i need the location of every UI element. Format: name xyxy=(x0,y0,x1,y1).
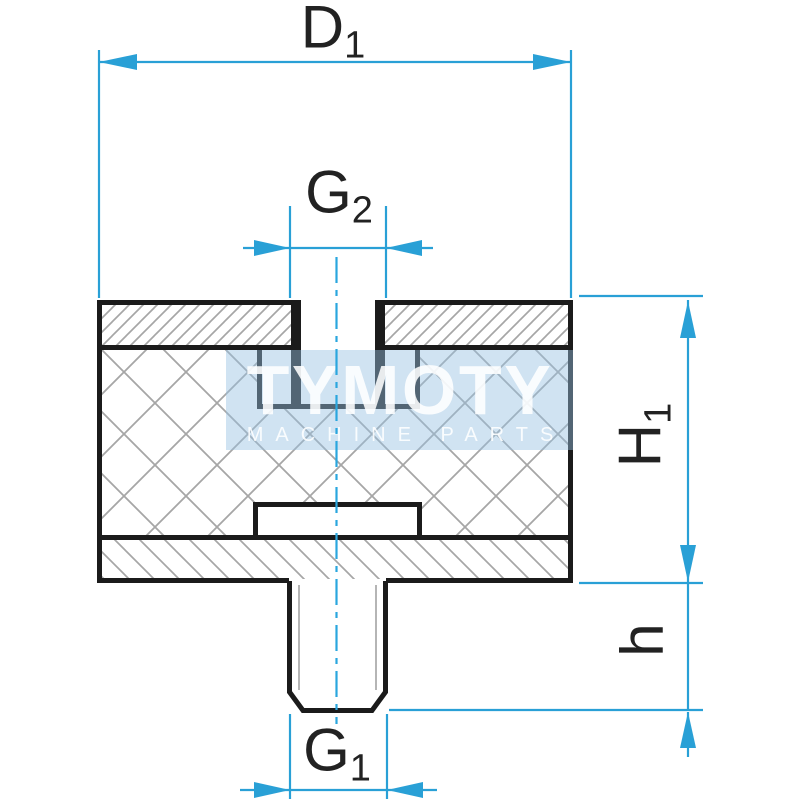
label-h1-sub: 1 xyxy=(638,403,680,424)
label-h1: H1 xyxy=(611,403,678,467)
d1-arrow-left-icon xyxy=(99,54,137,70)
label-h: h xyxy=(613,623,680,656)
watermark-title: TYMOTY xyxy=(247,351,554,429)
label-d1: D1 xyxy=(301,0,365,65)
g2-arrow-right-icon xyxy=(386,240,422,256)
label-g2: G2 xyxy=(305,163,373,230)
watermark-subtitle: MACHINE PARTS xyxy=(247,424,566,446)
g1-arrow-left-icon xyxy=(254,782,290,798)
label-h-main: h xyxy=(609,623,676,656)
drawing-canvas: TYMOTY MACHINE PARTS xyxy=(0,0,800,800)
h1-arrow-bottom-icon xyxy=(680,545,696,582)
label-h1-main: H xyxy=(607,424,674,467)
technical-drawing: TYMOTY MACHINE PARTS xyxy=(0,0,800,800)
g2-arrow-left-icon xyxy=(254,240,290,256)
thread-hole-interior xyxy=(300,297,376,350)
label-g2-main: G xyxy=(305,159,352,226)
bottom-plate-hatch xyxy=(100,539,570,579)
top-plate-hatch-right xyxy=(385,303,570,346)
label-g1-sub: 1 xyxy=(350,748,371,790)
label-g1: G1 xyxy=(303,721,371,788)
label-g1-main: G xyxy=(303,717,350,784)
label-d1-sub: 1 xyxy=(344,25,365,67)
g1-arrow-right-icon xyxy=(387,782,423,798)
h-arrow-bottom-icon xyxy=(680,712,696,748)
label-g2-sub: 2 xyxy=(352,190,373,232)
watermark: TYMOTY MACHINE PARTS xyxy=(226,350,573,450)
top-plate-hatch-left xyxy=(100,303,291,346)
label-d1-main: D xyxy=(301,0,344,61)
h1-arrow-top-icon xyxy=(680,301,696,338)
dimension-h xyxy=(389,583,703,757)
d1-arrow-right-icon xyxy=(533,54,571,70)
